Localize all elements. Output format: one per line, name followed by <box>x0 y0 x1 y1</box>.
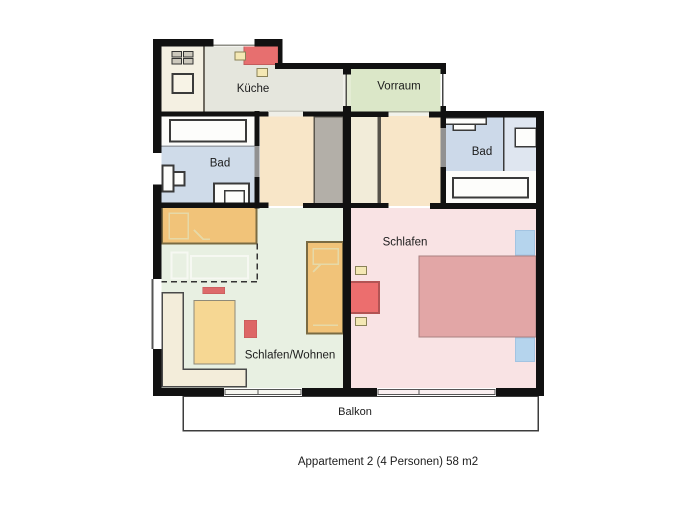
svg-text:Appartement 2 (4 Personen) 58: Appartement 2 (4 Personen) 58 m2 <box>298 456 478 468</box>
svg-text:Vorraum: Vorraum <box>377 81 420 93</box>
svg-text:Küche: Küche <box>237 83 270 95</box>
svg-text:Bad: Bad <box>210 158 230 170</box>
svg-text:Bad: Bad <box>472 146 492 158</box>
svg-text:Schlafen: Schlafen <box>383 237 428 249</box>
svg-text:Balkon: Balkon <box>338 406 372 418</box>
svg-text:Schlafen/Wohnen: Schlafen/Wohnen <box>245 350 336 362</box>
